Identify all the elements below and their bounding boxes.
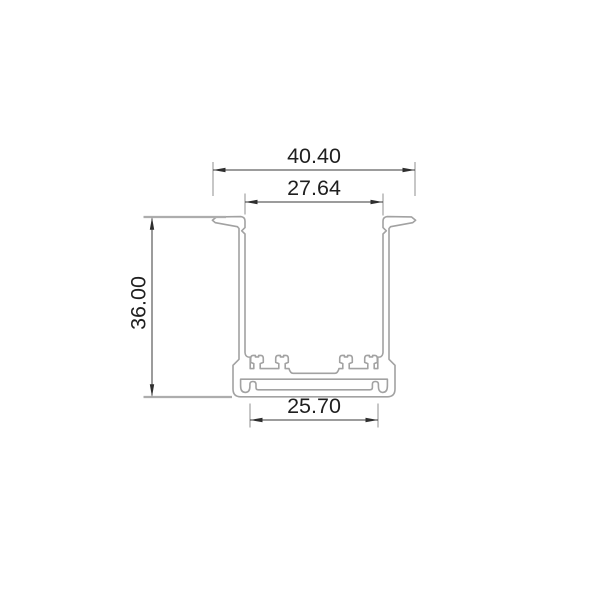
profile-bottom-channel — [241, 379, 388, 392]
arrowhead-left — [250, 418, 263, 422]
dimension-label-inner-width: 27.64 — [287, 176, 341, 200]
profile-outline — [212, 217, 415, 397]
arrowhead-bottom — [150, 384, 154, 397]
dimension-label-outer-width: 40.40 — [287, 144, 341, 168]
dimension-label-base-width: 25.70 — [287, 394, 341, 418]
arrowhead-left — [245, 200, 258, 204]
arrowhead-right — [371, 200, 384, 204]
arrowhead-left — [213, 168, 226, 172]
dimension-base-width: 25.70 — [250, 394, 378, 428]
arrowhead-right — [366, 418, 379, 422]
profile-cross-section-drawing: 40.40 27.64 36.00 25.70 — [0, 0, 600, 600]
arrowhead-right — [403, 168, 416, 172]
profile-geometry — [212, 217, 415, 397]
technical-drawing-canvas: 40.40 27.64 36.00 25.70 — [0, 0, 600, 600]
arrowhead-top — [150, 217, 154, 230]
dimension-height: 36.00 — [127, 217, 233, 397]
dimension-inner-width: 27.64 — [245, 176, 383, 216]
dimension-label-height: 36.00 — [127, 276, 151, 330]
